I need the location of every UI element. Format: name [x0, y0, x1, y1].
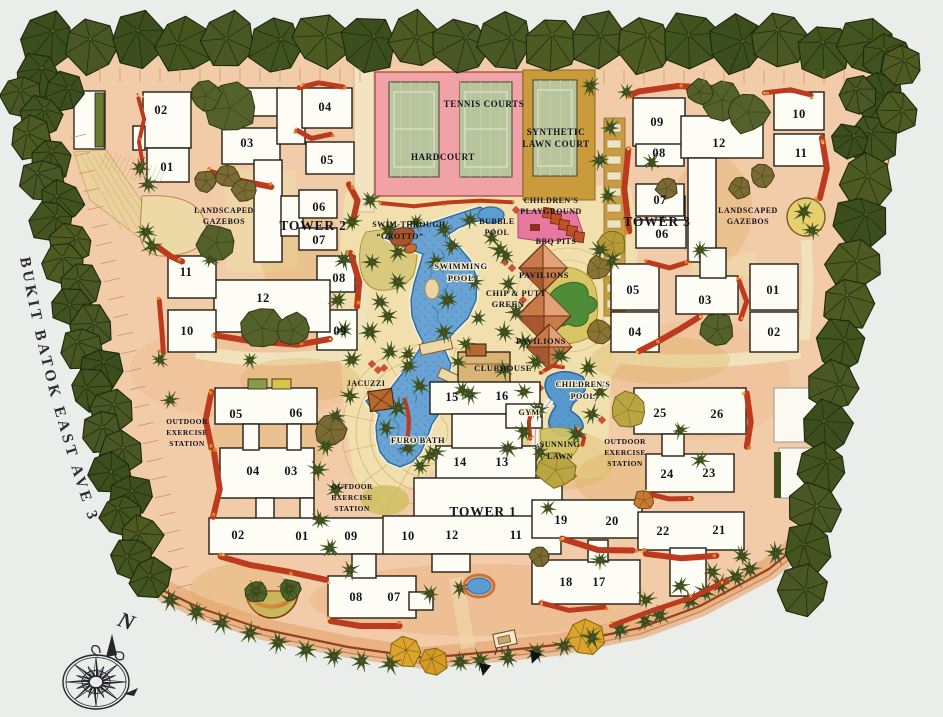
svg-text:TOWER 1: TOWER 1 [449, 504, 516, 519]
svg-text:05: 05 [626, 283, 639, 297]
svg-text:01: 01 [766, 283, 779, 297]
svg-text:OUTDOOR: OUTDOOR [166, 417, 208, 426]
svg-text:01: 01 [160, 160, 173, 174]
svg-text:01: 01 [295, 529, 308, 543]
svg-text:BUBBLE: BUBBLE [479, 217, 514, 226]
svg-text:07: 07 [312, 233, 325, 247]
svg-text:22: 22 [656, 524, 669, 538]
svg-text:“GROTTO”: “GROTTO” [377, 232, 424, 241]
svg-text:STATION: STATION [334, 504, 370, 513]
svg-text:07: 07 [387, 590, 400, 604]
svg-text:PAVILIONS: PAVILIONS [516, 336, 566, 346]
svg-text:10: 10 [401, 529, 414, 543]
svg-text:LAWN: LAWN [547, 452, 573, 461]
svg-text:CHILDREN'S: CHILDREN'S [556, 380, 611, 389]
svg-text:04: 04 [318, 100, 332, 114]
svg-text:05: 05 [320, 153, 333, 167]
svg-text:PAVILIONS: PAVILIONS [519, 270, 569, 280]
svg-text:CHILDREN'S: CHILDREN'S [524, 196, 579, 205]
svg-text:POOL: POOL [485, 228, 510, 237]
svg-text:CHIP & PUTT: CHIP & PUTT [486, 288, 546, 298]
svg-text:06: 06 [655, 227, 668, 241]
svg-text:11: 11 [180, 265, 193, 279]
svg-text:02: 02 [767, 325, 780, 339]
svg-text:09: 09 [333, 324, 346, 338]
svg-text:08: 08 [332, 271, 345, 285]
svg-text:18: 18 [559, 575, 572, 589]
svg-text:14: 14 [453, 455, 467, 469]
svg-text:04: 04 [628, 325, 642, 339]
svg-text:EXERCISE: EXERCISE [331, 493, 373, 502]
svg-text:17: 17 [592, 575, 605, 589]
svg-text:STATION: STATION [169, 439, 205, 448]
svg-text:08: 08 [652, 146, 665, 160]
svg-text:02: 02 [231, 528, 244, 542]
svg-text:10: 10 [180, 324, 193, 338]
svg-text:SWIM-THROUGH: SWIM-THROUGH [372, 220, 446, 229]
svg-text:09: 09 [344, 529, 357, 543]
svg-text:19: 19 [554, 513, 567, 527]
svg-text:PLAYGROUND: PLAYGROUND [520, 207, 582, 216]
svg-text:12: 12 [256, 291, 269, 305]
svg-text:GAZEBOS: GAZEBOS [203, 217, 245, 226]
svg-text:TOWER 2: TOWER 2 [279, 218, 346, 233]
svg-text:POOL: POOL [571, 392, 596, 401]
svg-text:03: 03 [698, 293, 711, 307]
svg-text:26: 26 [710, 407, 723, 421]
svg-text:04: 04 [246, 464, 260, 478]
svg-text:24: 24 [660, 467, 674, 481]
svg-text:03: 03 [240, 136, 253, 150]
svg-text:15: 15 [445, 390, 458, 404]
svg-text:FURO BATH: FURO BATH [391, 435, 445, 445]
svg-text:SUNNING: SUNNING [540, 440, 580, 449]
svg-text:EXERCISE: EXERCISE [604, 448, 646, 457]
svg-text:21: 21 [712, 523, 725, 537]
svg-text:12: 12 [445, 528, 458, 542]
svg-text:07: 07 [653, 193, 666, 207]
svg-text:OUTDOOR: OUTDOOR [604, 437, 646, 446]
svg-text:POOL: POOL [448, 273, 475, 283]
svg-text:02: 02 [154, 103, 167, 117]
svg-text:SWIMMING: SWIMMING [434, 261, 487, 271]
svg-text:16: 16 [495, 389, 508, 403]
svg-text:13: 13 [495, 455, 508, 469]
svg-text:06: 06 [312, 200, 325, 214]
svg-text:CLUBHOUSE: CLUBHOUSE [474, 363, 532, 373]
svg-text:LAWN COURT: LAWN COURT [522, 139, 589, 149]
svg-text:08: 08 [349, 590, 362, 604]
svg-text:11: 11 [795, 146, 808, 160]
svg-text:09: 09 [650, 115, 663, 129]
svg-text:23: 23 [702, 466, 715, 480]
svg-text:BBQ PITS: BBQ PITS [536, 237, 577, 246]
svg-text:JACUZZI: JACUZZI [347, 379, 386, 388]
svg-text:TENNIS COURTS: TENNIS COURTS [444, 99, 525, 109]
svg-text:12: 12 [712, 136, 725, 150]
svg-text:25: 25 [653, 406, 666, 420]
svg-text:03: 03 [284, 464, 297, 478]
svg-text:STATION: STATION [607, 459, 643, 468]
svg-text:GREEN: GREEN [492, 299, 525, 309]
svg-text:10: 10 [792, 107, 805, 121]
svg-text:SYNTHETIC: SYNTHETIC [527, 127, 585, 137]
svg-text:HARDCOURT: HARDCOURT [411, 152, 475, 162]
svg-text:11: 11 [510, 528, 523, 542]
svg-text:EXERCISE: EXERCISE [166, 428, 208, 437]
svg-text:LANDSCAPED: LANDSCAPED [194, 206, 254, 215]
svg-text:06: 06 [289, 406, 302, 420]
svg-text:20: 20 [605, 514, 618, 528]
svg-text:LANDSCAPED: LANDSCAPED [718, 206, 778, 215]
svg-text:GYM: GYM [518, 408, 539, 417]
svg-text:05: 05 [229, 407, 242, 421]
svg-text:OUTDOOR: OUTDOOR [331, 482, 373, 491]
svg-text:GAZEBOS: GAZEBOS [727, 217, 769, 226]
